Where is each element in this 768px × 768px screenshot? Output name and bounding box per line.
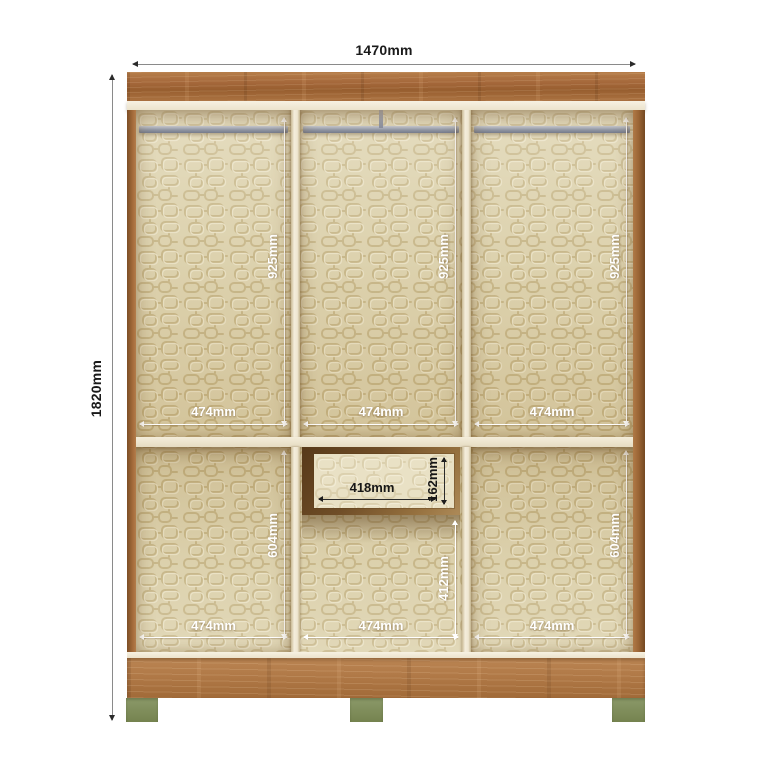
height-dimension-label: 925mm <box>607 234 622 279</box>
interior: 925mm 474mm 925mm 474mm <box>136 110 633 652</box>
top-shelf <box>127 101 645 110</box>
vertical-divider <box>291 110 300 437</box>
wardrobe-dimension-diagram: 1470mm 1820mm 925mm 474mm <box>0 0 768 768</box>
lower-row: 604mm 474mm 418mm <box>136 447 633 652</box>
lower-compartment-middle: 418mm 162mm 412mm 474mm <box>300 447 462 652</box>
upper-compartment-left: 925mm 474mm <box>136 110 291 437</box>
hanging-rail <box>474 126 630 133</box>
top-wood-panel <box>127 72 645 101</box>
overall-height-dimension-line <box>112 75 113 720</box>
width-dimension-label: 474mm <box>471 618 633 633</box>
vertical-divider <box>291 447 300 652</box>
overall-width-dimension-line <box>133 64 635 65</box>
height-dimension-label: 604mm <box>265 513 280 558</box>
width-dimension-label: 474mm <box>300 618 462 633</box>
width-dimension-label: 474mm <box>136 404 291 419</box>
vertical-divider <box>462 110 471 437</box>
width-dimension-label: 474mm <box>300 404 462 419</box>
lower-compartment-left: 604mm 474mm <box>136 447 291 652</box>
overall-height-label: 1820mm <box>88 360 104 417</box>
drawer-front: 418mm 162mm <box>314 454 454 508</box>
base-wood-panel <box>127 658 645 698</box>
under-drawer-shadow <box>302 515 460 543</box>
height-dimension-line <box>284 118 285 425</box>
width-dimension-line <box>140 637 287 638</box>
hanging-rail <box>139 126 288 133</box>
height-dimension-label: 925mm <box>436 234 451 279</box>
wardrobe-body: 925mm 474mm 925mm 474mm <box>127 72 645 698</box>
foot-middle <box>350 698 383 722</box>
width-dimension-label: 474mm <box>471 404 633 419</box>
width-dimension-line <box>304 424 458 425</box>
right-side-panel <box>633 110 645 652</box>
width-dimension-line <box>304 637 458 638</box>
upper-compartment-middle: 925mm 474mm <box>300 110 462 437</box>
height-dimension-line <box>284 451 285 638</box>
width-dimension-line <box>475 424 629 425</box>
foot-left <box>126 698 158 722</box>
height-dimension-line <box>626 451 627 638</box>
height-dimension-line <box>455 118 456 425</box>
upper-row: 925mm 474mm 925mm 474mm <box>136 110 633 437</box>
width-dimension-line <box>475 637 629 638</box>
drawer-width-label: 418mm <box>314 480 430 495</box>
width-dimension-label: 474mm <box>136 618 291 633</box>
rail-support-bracket <box>379 110 383 128</box>
height-dimension-label: 412mm <box>436 556 451 601</box>
middle-shelf <box>136 437 633 447</box>
height-dimension-label: 925mm <box>265 234 280 279</box>
drawer-height-dimension-line <box>444 458 445 504</box>
height-dimension-line <box>626 118 627 425</box>
overall-width-label: 1470mm <box>133 42 635 58</box>
foot-right <box>612 698 645 722</box>
drawer-height-label: 162mm <box>425 457 440 502</box>
vertical-divider <box>462 447 471 652</box>
width-dimension-line <box>140 424 287 425</box>
height-dimension-label: 604mm <box>607 513 622 558</box>
drawer-opening: 418mm 162mm <box>302 447 460 515</box>
lower-compartment-right: 604mm 474mm <box>471 447 633 652</box>
upper-compartment-right: 925mm 474mm <box>471 110 633 437</box>
left-side-panel <box>127 110 136 652</box>
drawer-width-dimension-line <box>319 499 435 500</box>
